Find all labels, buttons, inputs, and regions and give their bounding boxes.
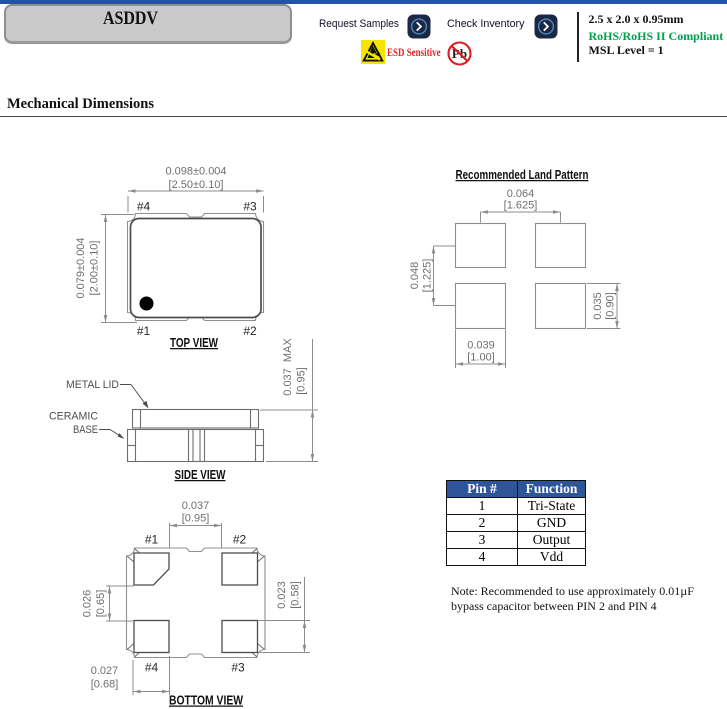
- svg-text:BOTTOM VIEW: BOTTOM VIEW: [169, 694, 243, 708]
- svg-text:TOP VIEW: TOP VIEW: [170, 336, 218, 350]
- svg-text:0.027: 0.027: [91, 665, 119, 677]
- svg-text:[0.68]: [0.68]: [91, 679, 119, 691]
- svg-text:#4: #4: [137, 200, 151, 214]
- svg-text:CERAMIC: CERAMIC: [49, 411, 98, 423]
- svg-text:0.037 MAX: 0.037 MAX: [282, 338, 294, 396]
- svg-text:#2: #2: [243, 324, 257, 338]
- svg-text:[1.00]: [1.00]: [467, 352, 495, 364]
- svg-text:Recommended Land Pattern: Recommended Land Pattern: [456, 168, 589, 182]
- svg-text:#3: #3: [231, 661, 245, 675]
- svg-text:0.098±0.004: 0.098±0.004: [165, 166, 226, 178]
- svg-text:0.035: 0.035: [592, 292, 604, 320]
- svg-text:[1.625]: [1.625]: [504, 200, 538, 212]
- svg-text:0.037: 0.037: [182, 500, 210, 512]
- svg-text:[0.90]: [0.90]: [605, 292, 617, 320]
- svg-text:[0.95]: [0.95]: [182, 513, 210, 525]
- svg-text:#4: #4: [145, 661, 159, 675]
- svg-text:METAL LID: METAL LID: [66, 379, 119, 391]
- svg-text:[0.65]: [0.65]: [95, 590, 107, 618]
- svg-text:[2.50±0.10]: [2.50±0.10]: [169, 179, 224, 191]
- svg-text:SIDE VIEW: SIDE VIEW: [175, 468, 226, 482]
- svg-text:0.039: 0.039: [467, 340, 495, 352]
- svg-text:#1: #1: [137, 324, 151, 338]
- svg-text:#2: #2: [233, 533, 247, 547]
- svg-text:[1.225]: [1.225]: [422, 259, 434, 293]
- svg-text:#3: #3: [243, 200, 257, 214]
- svg-text:0.079±0.004: 0.079±0.004: [75, 237, 87, 298]
- svg-text:0.064: 0.064: [507, 188, 535, 200]
- svg-text:[0.58]: [0.58]: [290, 581, 302, 609]
- svg-text:0.048: 0.048: [409, 262, 421, 290]
- svg-text:[0.95]: [0.95]: [296, 367, 308, 395]
- svg-text:[2.00±0.10]: [2.00±0.10]: [89, 241, 101, 296]
- svg-text:#1: #1: [145, 533, 159, 547]
- svg-text:0.026: 0.026: [82, 590, 94, 618]
- svg-text:0.023: 0.023: [276, 581, 288, 609]
- svg-text:BASE: BASE: [73, 424, 98, 436]
